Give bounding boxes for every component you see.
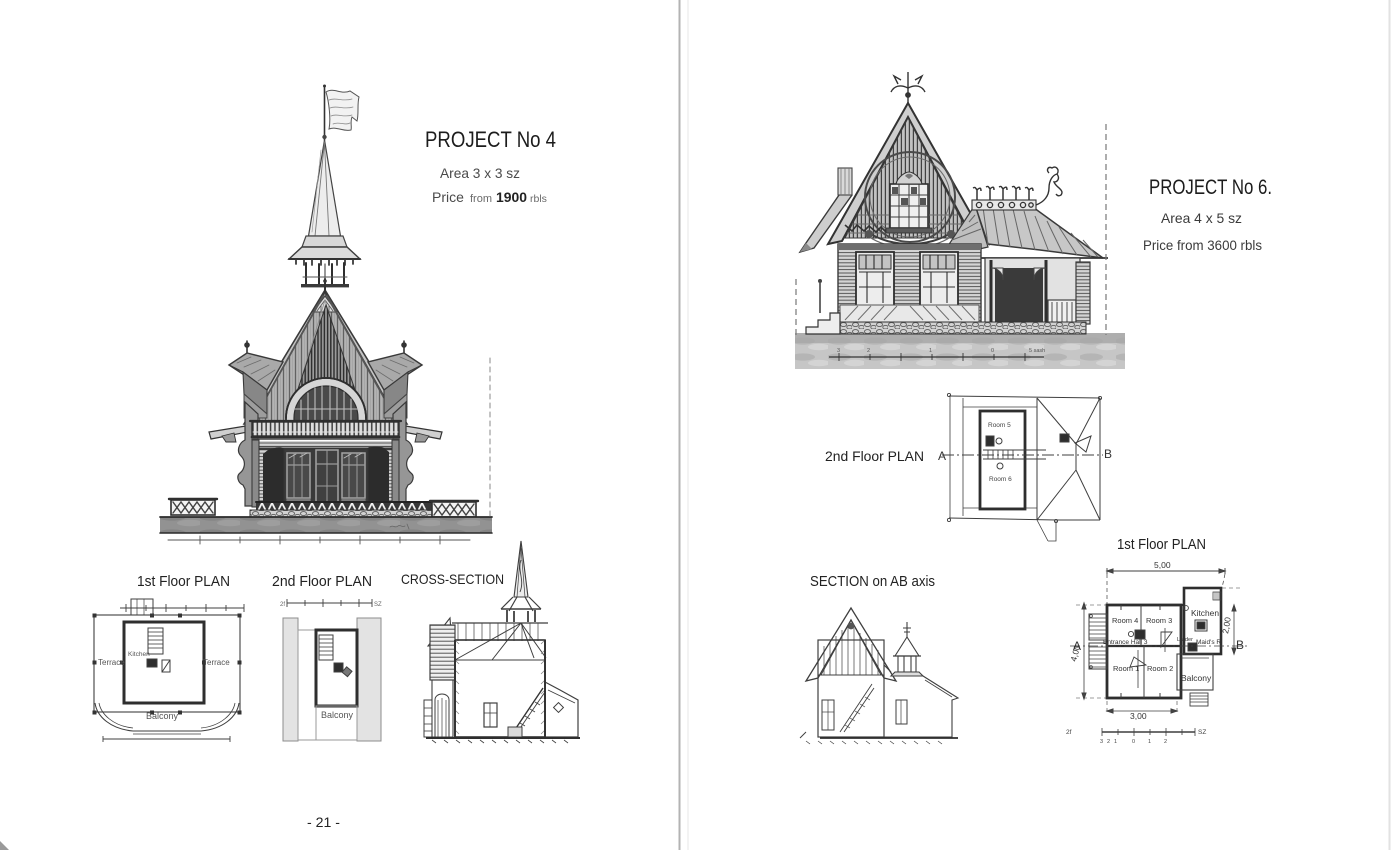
svg-text:SZ: SZ <box>1198 729 1206 736</box>
svg-text:Terrace: Terrace <box>98 658 125 667</box>
svg-text:1st Floor PLAN: 1st Floor PLAN <box>1117 537 1206 553</box>
svg-text:3: 3 <box>1100 739 1103 745</box>
svg-text:CROSS-SECTION: CROSS-SECTION <box>401 571 504 587</box>
svg-text:A: A <box>938 449 946 463</box>
svg-text:PROJECT No 6.: PROJECT No 6. <box>1149 176 1272 199</box>
svg-text:Entrance Hall 3: Entrance Hall 3 <box>1103 639 1148 646</box>
svg-text:Kitchen: Kitchen <box>1191 609 1219 618</box>
svg-text:Larder: Larder <box>1177 637 1193 643</box>
svg-text:A: A <box>1073 639 1081 653</box>
svg-text:Price from 3600 rbls: Price from 3600 rbls <box>1143 237 1262 253</box>
svg-text:Room 5: Room 5 <box>988 422 1011 429</box>
svg-text:SZ: SZ <box>374 602 382 608</box>
svg-text:2nd Floor PLAN: 2nd Floor PLAN <box>272 574 372 590</box>
svg-text:3: 3 <box>837 348 840 354</box>
svg-text:Balcony: Balcony <box>321 710 354 720</box>
svg-text:- 21 -: - 21 - <box>307 814 340 830</box>
svg-text:Terrace: Terrace <box>203 658 230 667</box>
svg-text:5,00: 5,00 <box>1154 560 1171 570</box>
svg-text:Kitchen: Kitchen <box>128 651 150 658</box>
svg-text:5 sash: 5 sash <box>1029 348 1045 354</box>
svg-text:Room 2: Room 2 <box>1147 664 1173 673</box>
svg-text:2f: 2f <box>280 602 285 608</box>
svg-text:2: 2 <box>1107 739 1110 745</box>
svg-text:2f: 2f <box>1066 729 1072 736</box>
svg-text:2: 2 <box>867 348 870 354</box>
svg-text:Balcony: Balcony <box>146 711 179 721</box>
svg-text:from: from <box>470 193 492 205</box>
svg-text:Price: Price <box>432 189 464 205</box>
svg-text:Room 4: Room 4 <box>1112 616 1138 625</box>
svg-text:3,00: 3,00 <box>1130 711 1147 721</box>
svg-text:Room 1: Room 1 <box>1113 664 1139 673</box>
svg-text:1st Floor PLAN: 1st Floor PLAN <box>137 574 230 590</box>
svg-text:0: 0 <box>991 348 994 354</box>
svg-text:Room 3: Room 3 <box>1146 616 1172 625</box>
svg-text:B: B <box>1236 638 1244 652</box>
svg-text:Maid's R: Maid's R <box>1196 639 1221 646</box>
svg-text:PROJECT No 4: PROJECT No 4 <box>425 127 556 152</box>
svg-text:Area 3 x 3 sz: Area 3 x 3 sz <box>440 165 520 181</box>
svg-text:2nd Floor PLAN: 2nd Floor PLAN <box>825 448 924 464</box>
svg-text:0: 0 <box>1132 739 1135 745</box>
svg-text:1: 1 <box>929 348 932 354</box>
svg-text:2: 2 <box>1164 739 1167 745</box>
svg-text:Area 4 x 5 sz: Area 4 x 5 sz <box>1161 210 1242 226</box>
svg-text:1: 1 <box>1114 739 1117 745</box>
svg-text:Balcony: Balcony <box>1181 673 1212 683</box>
svg-text:B: B <box>1104 447 1112 461</box>
svg-text:SECTION on AB axis: SECTION on AB axis <box>810 574 935 590</box>
svg-text:1900: 1900 <box>496 190 527 205</box>
svg-text:1: 1 <box>1148 739 1151 745</box>
svg-text:Room 6: Room 6 <box>989 476 1012 483</box>
svg-text:rbls: rbls <box>530 193 547 205</box>
